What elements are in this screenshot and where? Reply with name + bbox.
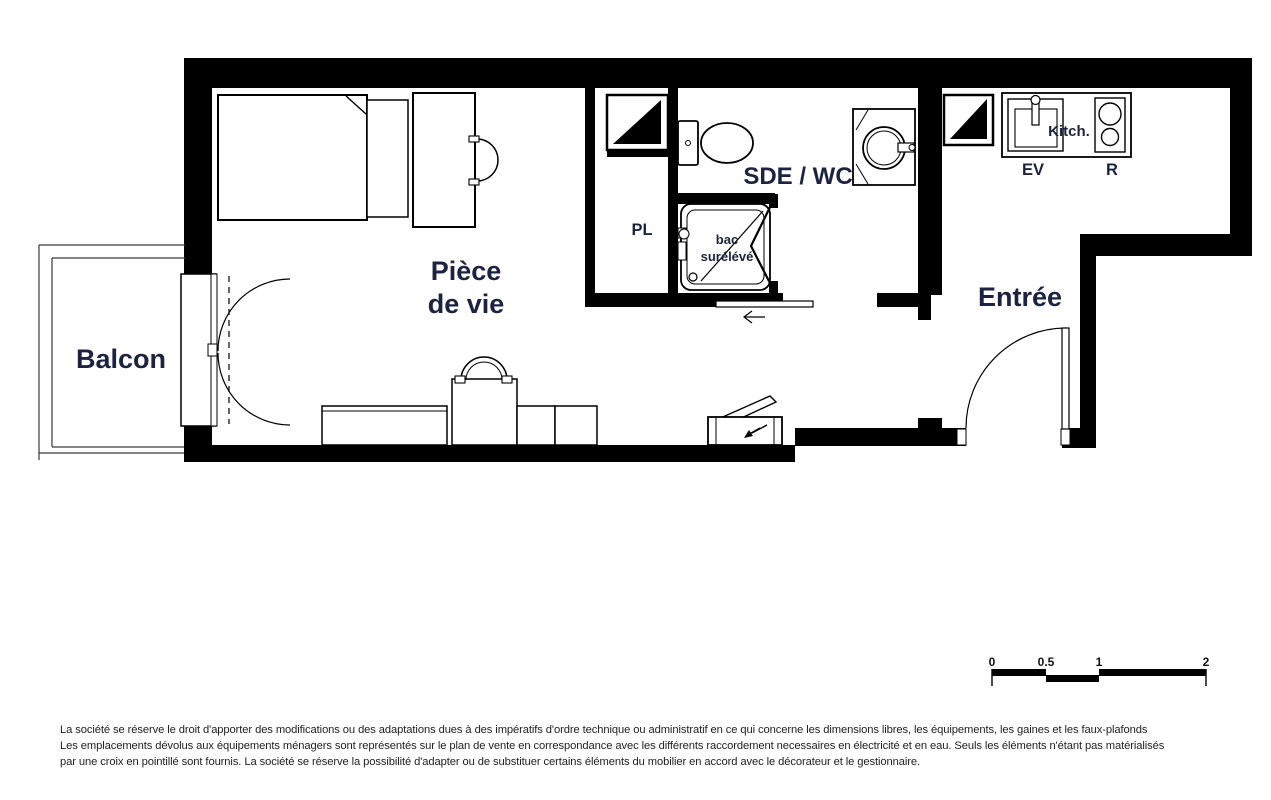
hob-burner-large <box>1099 103 1121 125</box>
scale-tick-1: 1 <box>1096 655 1103 669</box>
wall-sde-bottom-2 <box>877 293 918 307</box>
label-ev: EV <box>1022 161 1044 179</box>
chair-armrest <box>502 376 512 383</box>
wall-shower-top <box>675 193 775 204</box>
shower-door-post <box>769 194 778 208</box>
hob-burner-small <box>1102 129 1119 146</box>
label-kitch: Kitch. <box>1048 123 1090 140</box>
door-leaf <box>1062 328 1069 429</box>
bed <box>218 95 408 220</box>
wall-right-upper <box>1230 58 1252 256</box>
shower-drain <box>689 273 697 281</box>
wall-right-lower <box>1080 234 1096 448</box>
label-bac-line2: surélévé <box>701 249 754 264</box>
balcony-door-handle <box>208 344 217 356</box>
floor-plan-drawing: Balcon Pièce de vie SDE / WC Entrée PL K… <box>0 0 1271 800</box>
scale-tick-2: 2 <box>1203 655 1210 669</box>
low-cabinets <box>322 357 597 445</box>
wall-pl-right <box>668 88 678 293</box>
disclaimer-line-3: par une croix en pointillé sont fournis.… <box>60 755 1202 771</box>
scale-segment <box>1046 675 1099 682</box>
wall-top <box>184 58 1252 88</box>
kitchen-tap-knob <box>1031 96 1040 105</box>
chair-armrest <box>455 376 465 383</box>
disclaimer-text: La société se réserve le droit d'apporte… <box>60 723 1202 771</box>
chair-armrest <box>469 136 479 142</box>
toilet-bowl <box>701 123 753 163</box>
balcony-door <box>181 274 290 426</box>
wall-bottom-left <box>184 445 795 462</box>
wall-sde-entree <box>918 88 942 295</box>
shower-mixer-knob <box>679 229 689 239</box>
toilet-icon <box>678 121 753 165</box>
disclaimer-line-1: La société se réserve le droit d'apporte… <box>60 723 1202 739</box>
washbasin-tap-knob <box>909 145 915 151</box>
door-jamb <box>957 429 966 445</box>
disclaimer-line-2: Les emplacements dévolus aux équipements… <box>60 739 1202 755</box>
wall-sde-entree-notch <box>918 295 931 320</box>
sliding-direction-arrow <box>744 311 765 323</box>
shaft-entree <box>944 95 993 145</box>
scale-segment <box>1099 669 1206 676</box>
electric-radiator <box>708 396 782 445</box>
wall-pl-left <box>585 88 595 293</box>
door-swing-arc <box>966 328 1066 428</box>
desk-surface <box>413 93 475 227</box>
washbasin-bowl-inner <box>867 131 901 165</box>
toilet-button <box>686 141 691 146</box>
sliding-door-panel <box>716 301 813 307</box>
scale-segment <box>992 669 1046 676</box>
desk-bottom <box>452 379 517 445</box>
shaft-pl <box>607 95 668 150</box>
shower-door-post <box>769 281 778 294</box>
sideboard <box>322 406 447 445</box>
cabinet <box>517 406 555 445</box>
bed-mattress <box>218 95 367 220</box>
scale-tick-05: 0.5 <box>1038 655 1055 669</box>
label-piece-de-vie-line2: de vie <box>428 289 505 319</box>
bed-side-unit <box>367 100 408 217</box>
label-pl: PL <box>631 221 652 239</box>
wall-bottom-mid <box>795 428 966 446</box>
label-bac-line1: bac <box>716 232 738 247</box>
wall-step-horizontal <box>1080 234 1252 256</box>
chair-back-arc <box>477 139 498 181</box>
label-sde-wc: SDE / WC <box>743 163 852 190</box>
wall-left-stub <box>184 424 212 448</box>
label-piece-de-vie-line1: Pièce <box>431 256 502 286</box>
label-balcon: Balcon <box>76 344 166 374</box>
wall-left-upper <box>184 58 212 275</box>
label-r: R <box>1106 161 1118 179</box>
floor-plan-page: Balcon Pièce de vie SDE / WC Entrée PL K… <box>0 0 1271 800</box>
door-jamb <box>1061 429 1070 445</box>
cabinet <box>555 406 597 445</box>
scale-bar: 0 0.5 1 2 <box>989 655 1210 686</box>
shower-valve <box>678 242 686 260</box>
chair-armrest <box>469 179 479 185</box>
desk-top <box>413 93 498 227</box>
chair-back-inner-arc <box>466 362 502 380</box>
washbasin-icon <box>853 109 915 185</box>
scale-tick-0: 0 <box>989 655 996 669</box>
radiator-body <box>708 417 782 445</box>
sliding-door <box>716 301 813 323</box>
label-entree: Entrée <box>978 282 1062 312</box>
wall-bump-sde <box>918 418 942 430</box>
chair-back-arc <box>461 357 507 380</box>
entrance-door <box>957 328 1070 445</box>
